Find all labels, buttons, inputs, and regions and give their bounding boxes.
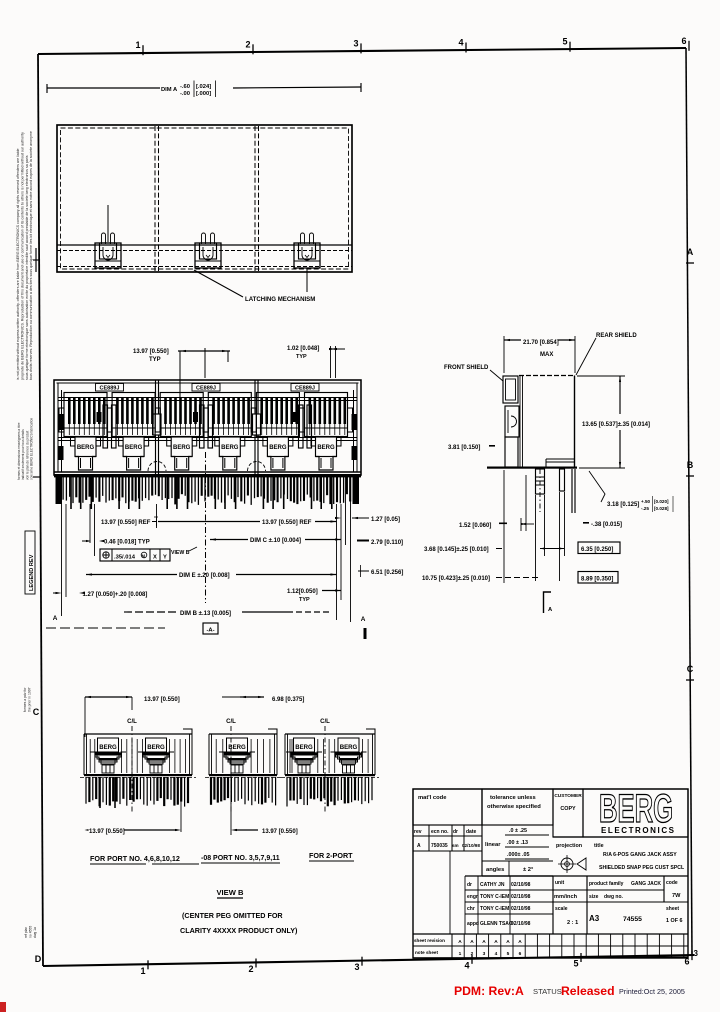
svg-text:engr: engr bbox=[467, 894, 478, 900]
svg-text:TONY C-IEM: TONY C-IEM bbox=[480, 894, 509, 900]
svg-text:unit: unit bbox=[555, 880, 564, 886]
svg-text:FRONT SHIELD: FRONT SHIELD bbox=[444, 365, 489, 371]
svg-text:.000± .05: .000± .05 bbox=[507, 852, 529, 858]
svg-text:6: 6 bbox=[681, 36, 686, 46]
svg-text:750035: 750035 bbox=[431, 843, 448, 849]
svg-text:2: 2 bbox=[245, 39, 250, 49]
svg-text:A: A bbox=[458, 939, 462, 945]
svg-text:C: C bbox=[33, 707, 40, 717]
svg-text:LATCHING MECHANISM: LATCHING MECHANISM bbox=[245, 296, 315, 303]
svg-text:13.65 [0.537]±.35 [0.014]: 13.65 [0.537]±.35 [0.014] bbox=[582, 422, 650, 428]
svg-text:note sheet: note sheet bbox=[415, 950, 438, 955]
svg-text:Y: Y bbox=[163, 555, 167, 561]
svg-text:otherwise specified: otherwise specified bbox=[487, 804, 541, 810]
svg-text:3: 3 bbox=[694, 949, 699, 958]
svg-text:A: A bbox=[494, 939, 498, 945]
svg-text:DIM E ±.20 [0.008]: DIM E ±.20 [0.008] bbox=[179, 573, 230, 579]
svg-text:5: 5 bbox=[573, 958, 578, 968]
svg-text:1: 1 bbox=[140, 966, 145, 976]
svg-text:13.97 [0.550]: 13.97 [0.550] bbox=[262, 829, 298, 835]
svg-text:6.98 [0.375]: 6.98 [0.375] bbox=[272, 697, 304, 703]
svg-text:-A-: -A- bbox=[206, 628, 214, 634]
svg-text:8.89 [0.350]: 8.89 [0.350] bbox=[581, 577, 613, 583]
svg-text:CLARITY 4XXXX PRODUCT ONLY): CLARITY 4XXXX PRODUCT ONLY) bbox=[180, 926, 298, 935]
svg-text:concerne BERG ELECTRONICS fabr: concerne BERG ELECTRONICS fabrication bbox=[30, 418, 34, 480]
svg-text:no 4555: no 4555 bbox=[29, 926, 33, 938]
svg-text:BERG: BERG bbox=[173, 445, 191, 451]
svg-text:2: 2 bbox=[248, 964, 253, 974]
svg-text:(CENTER PEG OMITTED FOR: (CENTER PEG OMITTED FOR bbox=[182, 911, 283, 920]
svg-text:BERG: BERG bbox=[77, 445, 95, 451]
svg-text:13.97 [0.550]: 13.97 [0.550] bbox=[133, 349, 169, 355]
svg-text:A: A bbox=[687, 247, 694, 257]
svg-text:3.18 [0.125]: 3.18 [0.125] bbox=[607, 502, 639, 508]
svg-text:R/A 6-POS GANG JACK ASSY: R/A 6-POS GANG JACK ASSY bbox=[603, 852, 677, 858]
svg-text:CE889J: CE889J bbox=[196, 386, 216, 392]
svg-text:4: 4 bbox=[464, 960, 469, 970]
svg-text:3.81 [0.150]: 3.81 [0.150] bbox=[448, 445, 480, 451]
svg-text:BERG: BERG bbox=[147, 744, 165, 751]
svg-text:21.70 [0.854]: 21.70 [0.854] bbox=[523, 340, 559, 346]
svg-text:chr: chr bbox=[467, 906, 475, 912]
svg-text:.00 ± .13: .00 ± .13 bbox=[507, 840, 528, 846]
svg-text:3: 3 bbox=[353, 38, 358, 48]
svg-text:TYP: TYP bbox=[296, 354, 307, 360]
svg-text:Released: Released bbox=[561, 984, 615, 998]
svg-text:2 : 1: 2 : 1 bbox=[567, 920, 578, 926]
svg-text:linear: linear bbox=[485, 842, 501, 848]
svg-text:A3: A3 bbox=[589, 914, 600, 923]
svg-text:Printed:Oct 25, 2005: Printed:Oct 25, 2005 bbox=[619, 987, 685, 996]
svg-text:1.02 [0.048]: 1.02 [0.048] bbox=[287, 346, 319, 352]
svg-text:-08 PORT NO. 3,5,7,9,11: -08 PORT NO. 3,5,7,9,11 bbox=[201, 855, 280, 862]
svg-text:C/L: C/L bbox=[320, 718, 330, 725]
svg-text:-.38 [0.015]: -.38 [0.015] bbox=[591, 522, 622, 528]
svg-text:scale: scale bbox=[555, 906, 568, 912]
svg-text:propriete de BERG ELECTRONICS.: propriete de BERG ELECTRONICS. Reproduct… bbox=[20, 132, 24, 380]
svg-text:4: 4 bbox=[495, 951, 498, 957]
svg-text:dr: dr bbox=[453, 829, 458, 835]
svg-text:SHIELDED SNAP PEG CUST SPCL: SHIELDED SNAP PEG CUST SPCL bbox=[599, 865, 685, 871]
svg-text:appd: appd bbox=[467, 921, 479, 927]
svg-text:-.00: -.00 bbox=[180, 91, 190, 97]
svg-text:ecn no.: ecn no. bbox=[431, 829, 449, 835]
svg-text:BERG: BERG bbox=[295, 744, 313, 751]
svg-text:5: 5 bbox=[562, 37, 567, 47]
svg-text:sheet: sheet bbox=[666, 906, 679, 912]
svg-text:2.79 [0.110]: 2.79 [0.110] bbox=[371, 540, 403, 546]
svg-text:3: 3 bbox=[354, 962, 359, 972]
svg-text:formes a pdv for: formes a pdv for bbox=[23, 687, 27, 712]
svg-text:4: 4 bbox=[458, 38, 463, 48]
svg-text:A: A bbox=[518, 939, 522, 945]
svg-text:FOR 2-PORT: FOR 2-PORT bbox=[309, 851, 353, 860]
svg-text:BERG: BERG bbox=[317, 445, 335, 451]
svg-text:6: 6 bbox=[519, 951, 522, 957]
svg-text:sous quelque forme electroniqu: sous quelque forme electronique sans aut… bbox=[25, 155, 29, 380]
svg-text:VIEW B: VIEW B bbox=[216, 888, 244, 897]
svg-text:code: code bbox=[666, 880, 678, 886]
svg-text:ref plan: ref plan bbox=[24, 927, 28, 938]
svg-text:sheet revision: sheet revision bbox=[414, 938, 445, 943]
svg-text:± 2°: ± 2° bbox=[523, 867, 534, 873]
svg-text:A: A bbox=[53, 615, 58, 622]
svg-text:-.60: -.60 bbox=[180, 84, 190, 90]
svg-text:C/L: C/L bbox=[127, 718, 137, 725]
svg-text:A: A bbox=[470, 939, 474, 945]
svg-text:13.97 [0.550] REF: 13.97 [0.550] REF bbox=[101, 520, 151, 526]
svg-text:[0.020]: [0.020] bbox=[654, 499, 669, 504]
svg-text:title: title bbox=[594, 843, 604, 849]
svg-text:A: A bbox=[361, 616, 366, 623]
svg-text:BERG: BERG bbox=[269, 445, 287, 451]
svg-text:BERG: BERG bbox=[99, 744, 117, 751]
svg-text:CUSTOMER: CUSTOMER bbox=[554, 793, 582, 799]
svg-text:dwg no.: dwg no. bbox=[604, 894, 623, 900]
svg-text:6.51 [0.256]: 6.51 [0.256] bbox=[371, 570, 403, 576]
svg-text:MAX: MAX bbox=[540, 352, 553, 358]
svg-text:02/10/98: 02/10/98 bbox=[511, 906, 531, 912]
svg-text:STATUS:: STATUS: bbox=[533, 987, 564, 996]
svg-text:LEGEND REV: LEGEND REV bbox=[29, 554, 35, 591]
svg-text:3.68 [0.145]±.25 [0.010]: 3.68 [0.145]±.25 [0.010] bbox=[424, 547, 489, 553]
svg-text:X: X bbox=[153, 555, 157, 561]
svg-text:FOR PORT NO. 4,6,8,10,12: FOR PORT NO. 4,6,8,10,12 bbox=[90, 854, 180, 863]
svg-text:date: date bbox=[466, 829, 477, 835]
svg-text:[.024]: [.024] bbox=[196, 84, 211, 90]
svg-text:+.50: +.50 bbox=[641, 499, 651, 504]
svg-text:1.52 [0.060]: 1.52 [0.060] bbox=[459, 523, 491, 529]
svg-text:size: size bbox=[589, 894, 599, 900]
svg-text:VIEW B: VIEW B bbox=[171, 550, 190, 556]
svg-text:1.27 [0.050]+.20 [0.008]: 1.27 [0.050]+.20 [0.008] bbox=[83, 592, 148, 598]
svg-text:1 OF 6: 1 OF 6 bbox=[666, 918, 682, 924]
svg-text:product family: product family bbox=[589, 881, 624, 887]
svg-text:rev: rev bbox=[414, 829, 422, 835]
svg-text:13.97 [0.550] REF: 13.97 [0.550] REF bbox=[262, 520, 312, 526]
svg-text:M: M bbox=[142, 554, 146, 559]
svg-text:10.75 [0.423]±.25 [0.010]: 10.75 [0.423]±.25 [0.010] bbox=[422, 576, 490, 582]
svg-text:DIM A: DIM A bbox=[161, 87, 178, 93]
svg-text:A: A bbox=[482, 939, 486, 945]
svg-text:projection: projection bbox=[556, 843, 582, 849]
svg-text:74555: 74555 bbox=[623, 916, 642, 923]
svg-text:2: 2 bbox=[471, 951, 474, 957]
svg-text:.35/.014: .35/.014 bbox=[114, 555, 136, 561]
svg-text:6.35 [0.250]: 6.35 [0.250] bbox=[581, 547, 613, 553]
svg-text:BERG: BERG bbox=[125, 445, 143, 451]
svg-text:dwg 1a: dwg 1a bbox=[33, 927, 37, 938]
svg-text:5: 5 bbox=[507, 951, 510, 957]
svg-text:02/10/98: 02/10/98 bbox=[511, 921, 531, 927]
svg-text:dr: dr bbox=[467, 882, 472, 888]
svg-text:mm/inch: mm/inch bbox=[554, 894, 578, 900]
svg-text:13.97 [0.550]: 13.97 [0.550] bbox=[144, 697, 180, 703]
svg-text:CE889J: CE889J bbox=[100, 386, 120, 392]
svg-text:BERG: BERG bbox=[221, 445, 239, 451]
svg-text:CATHY JN: CATHY JN bbox=[480, 882, 505, 888]
svg-text:mat'l code: mat'l code bbox=[418, 795, 447, 801]
svg-text:tolerance unless: tolerance unless bbox=[490, 795, 536, 801]
svg-text:-.25: -.25 bbox=[641, 506, 649, 511]
svg-text:1.12[0.050]: 1.12[0.050] bbox=[287, 589, 318, 595]
svg-text:BERG: BERG bbox=[340, 744, 358, 751]
svg-text:1: 1 bbox=[459, 951, 462, 957]
svg-text:B: B bbox=[687, 460, 694, 470]
svg-text:1.27 [0.05]: 1.27 [0.05] bbox=[371, 517, 400, 523]
svg-text:COPY: COPY bbox=[560, 806, 576, 812]
svg-text:CE889J: CE889J bbox=[295, 386, 315, 392]
svg-text:GLENN TSAO: GLENN TSAO bbox=[480, 921, 513, 927]
svg-text:the prior in 1997: the prior in 1997 bbox=[28, 687, 32, 712]
svg-text:ELECTRONICS: ELECTRONICS bbox=[601, 826, 675, 835]
svg-text:02/10/98: 02/10/98 bbox=[511, 894, 531, 900]
svg-text:TYP: TYP bbox=[299, 597, 310, 603]
svg-text:0.46 [0.018] TYP: 0.46 [0.018] TYP bbox=[104, 540, 150, 546]
svg-text:TONY C-IEM: TONY C-IEM bbox=[480, 906, 509, 912]
svg-text:tous droits reserves. Reproduc: tous droits reserves. Reproduction ou co… bbox=[29, 131, 33, 380]
svg-text:REAR SHIELD: REAR SHIELD bbox=[596, 333, 637, 339]
svg-text:BERG: BERG bbox=[228, 744, 246, 751]
svg-text:DIM C ±.10 [0.004]: DIM C ±.10 [0.004] bbox=[250, 538, 301, 544]
svg-text:is not permitted without expre: is not permitted without express written… bbox=[16, 148, 20, 380]
svg-text:13.97 [0.550]: 13.97 [0.550] bbox=[89, 829, 125, 835]
svg-text:A: A bbox=[506, 939, 510, 945]
svg-text:GANG JACK: GANG JACK bbox=[631, 881, 661, 887]
svg-text:sm: sm bbox=[452, 843, 459, 848]
svg-text:3: 3 bbox=[483, 951, 486, 957]
svg-text:D: D bbox=[35, 954, 42, 964]
svg-text:angles: angles bbox=[486, 867, 504, 873]
svg-text:02/10/98: 02/10/98 bbox=[511, 882, 531, 888]
svg-text:TYP: TYP bbox=[149, 357, 161, 363]
svg-text:DIM B ±.13 [0.005]: DIM B ±.13 [0.005] bbox=[180, 611, 231, 617]
svg-text:BERG: BERG bbox=[599, 787, 673, 831]
svg-text:C/L: C/L bbox=[226, 718, 236, 725]
svg-text:PDM: Rev:A: PDM: Rev:A bbox=[454, 984, 524, 998]
svg-text:C: C bbox=[687, 664, 694, 674]
svg-text:.0 ± .25: .0 ± .25 bbox=[509, 828, 527, 834]
svg-text:A: A bbox=[417, 843, 421, 849]
svg-text:1: 1 bbox=[135, 40, 140, 50]
svg-text:[.000]: [.000] bbox=[196, 91, 211, 97]
svg-text:02/10/98: 02/10/98 bbox=[462, 843, 480, 848]
svg-text:7W: 7W bbox=[672, 893, 681, 899]
svg-text:[0.028]: [0.028] bbox=[654, 506, 669, 511]
